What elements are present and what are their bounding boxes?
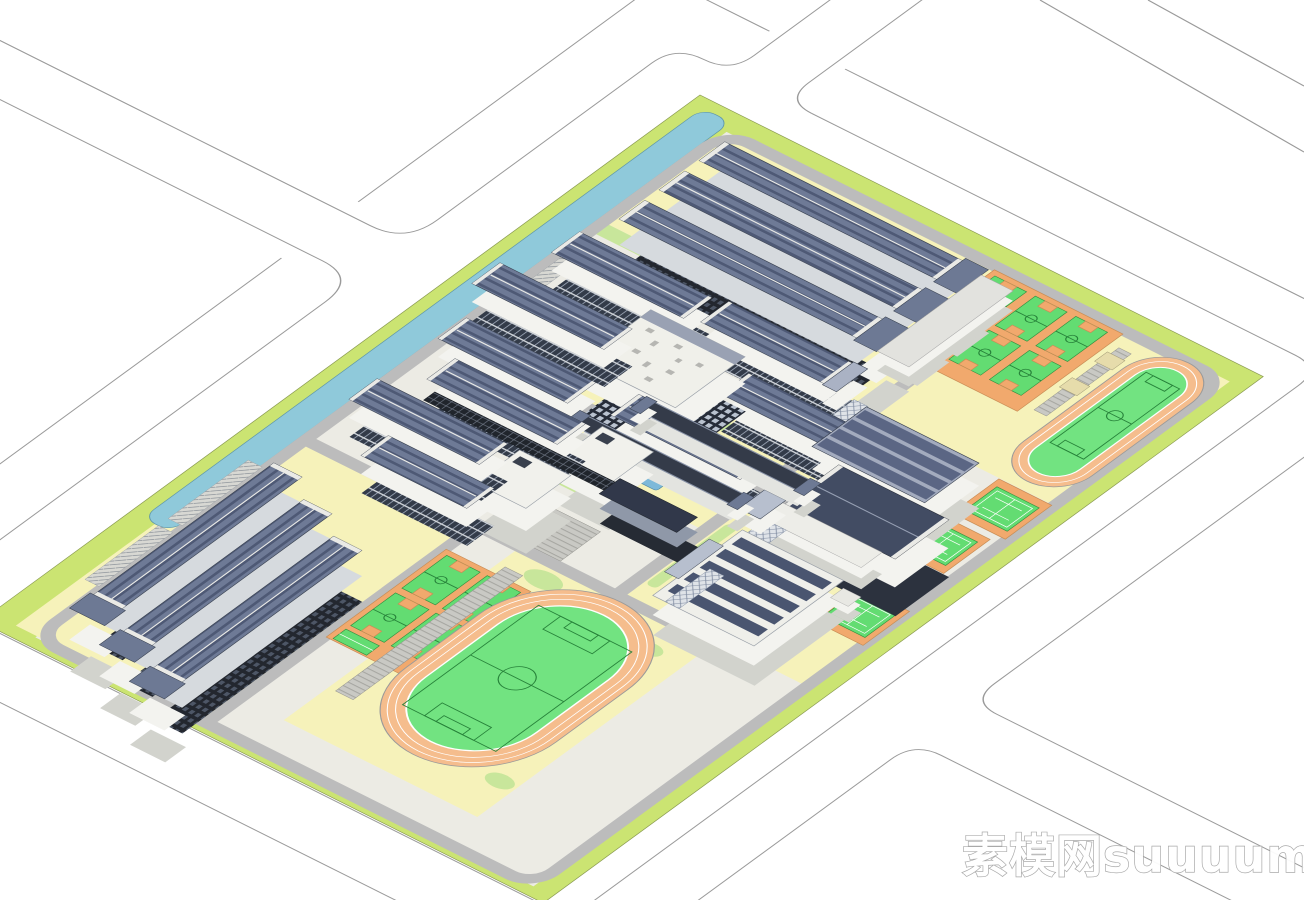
road-curb-ne-outer-west — [516, 0, 769, 31]
plan-projection — [0, 0, 1304, 900]
campus-render: 素模网suuuum.com — [0, 0, 1304, 900]
watermark: 素模网suuuum.com — [962, 829, 1304, 883]
scene-svg: 素模网suuuum.com — [0, 0, 1304, 900]
road-curb-branch-b — [785, 0, 1304, 113]
offsite-road-lines — [1040, 0, 1304, 152]
